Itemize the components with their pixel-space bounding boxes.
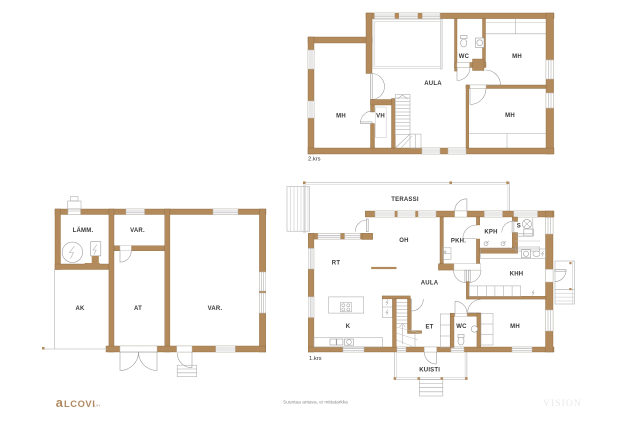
svg-text:VH: VH [376, 114, 385, 120]
svg-text:KPH: KPH [484, 230, 497, 236]
svg-text:a: a [56, 395, 64, 410]
svg-text:WC: WC [456, 324, 467, 330]
svg-text:AK: AK [75, 306, 85, 312]
svg-text:VISION: VISION [543, 399, 582, 409]
svg-text:KHH: KHH [510, 272, 524, 278]
svg-text:LÄMM.: LÄMM. [73, 227, 94, 234]
svg-text:K: K [346, 324, 351, 330]
svg-text:2.krs: 2.krs [308, 157, 321, 163]
svg-text:MH: MH [336, 114, 346, 120]
svg-text:AULA: AULA [424, 81, 442, 87]
svg-text:VAR.: VAR. [130, 228, 145, 234]
svg-text:LKV: LKV [95, 404, 101, 408]
svg-text:PKH.: PKH. [451, 239, 466, 245]
svg-text:WC: WC [459, 54, 470, 60]
svg-text:RT: RT [332, 261, 341, 267]
svg-text:1.krs: 1.krs [309, 356, 322, 362]
svg-text:Suuntaa antava, ei mittatarkka: Suuntaa antava, ei mittatarkka [283, 400, 348, 406]
svg-text:S: S [517, 223, 521, 229]
svg-text:ET: ET [425, 325, 433, 331]
svg-text:AULA: AULA [421, 281, 439, 287]
svg-text:LCOVI: LCOVI [64, 399, 95, 409]
svg-text:MH: MH [505, 113, 515, 119]
svg-text:KUISTI: KUISTI [419, 368, 440, 374]
svg-text:TERASSI: TERASSI [391, 197, 419, 203]
svg-text:AT: AT [134, 306, 142, 312]
svg-text:OH: OH [399, 238, 408, 244]
svg-text:MH: MH [510, 324, 520, 330]
svg-text:VAR.: VAR. [208, 306, 223, 312]
svg-text:MH: MH [512, 54, 522, 60]
